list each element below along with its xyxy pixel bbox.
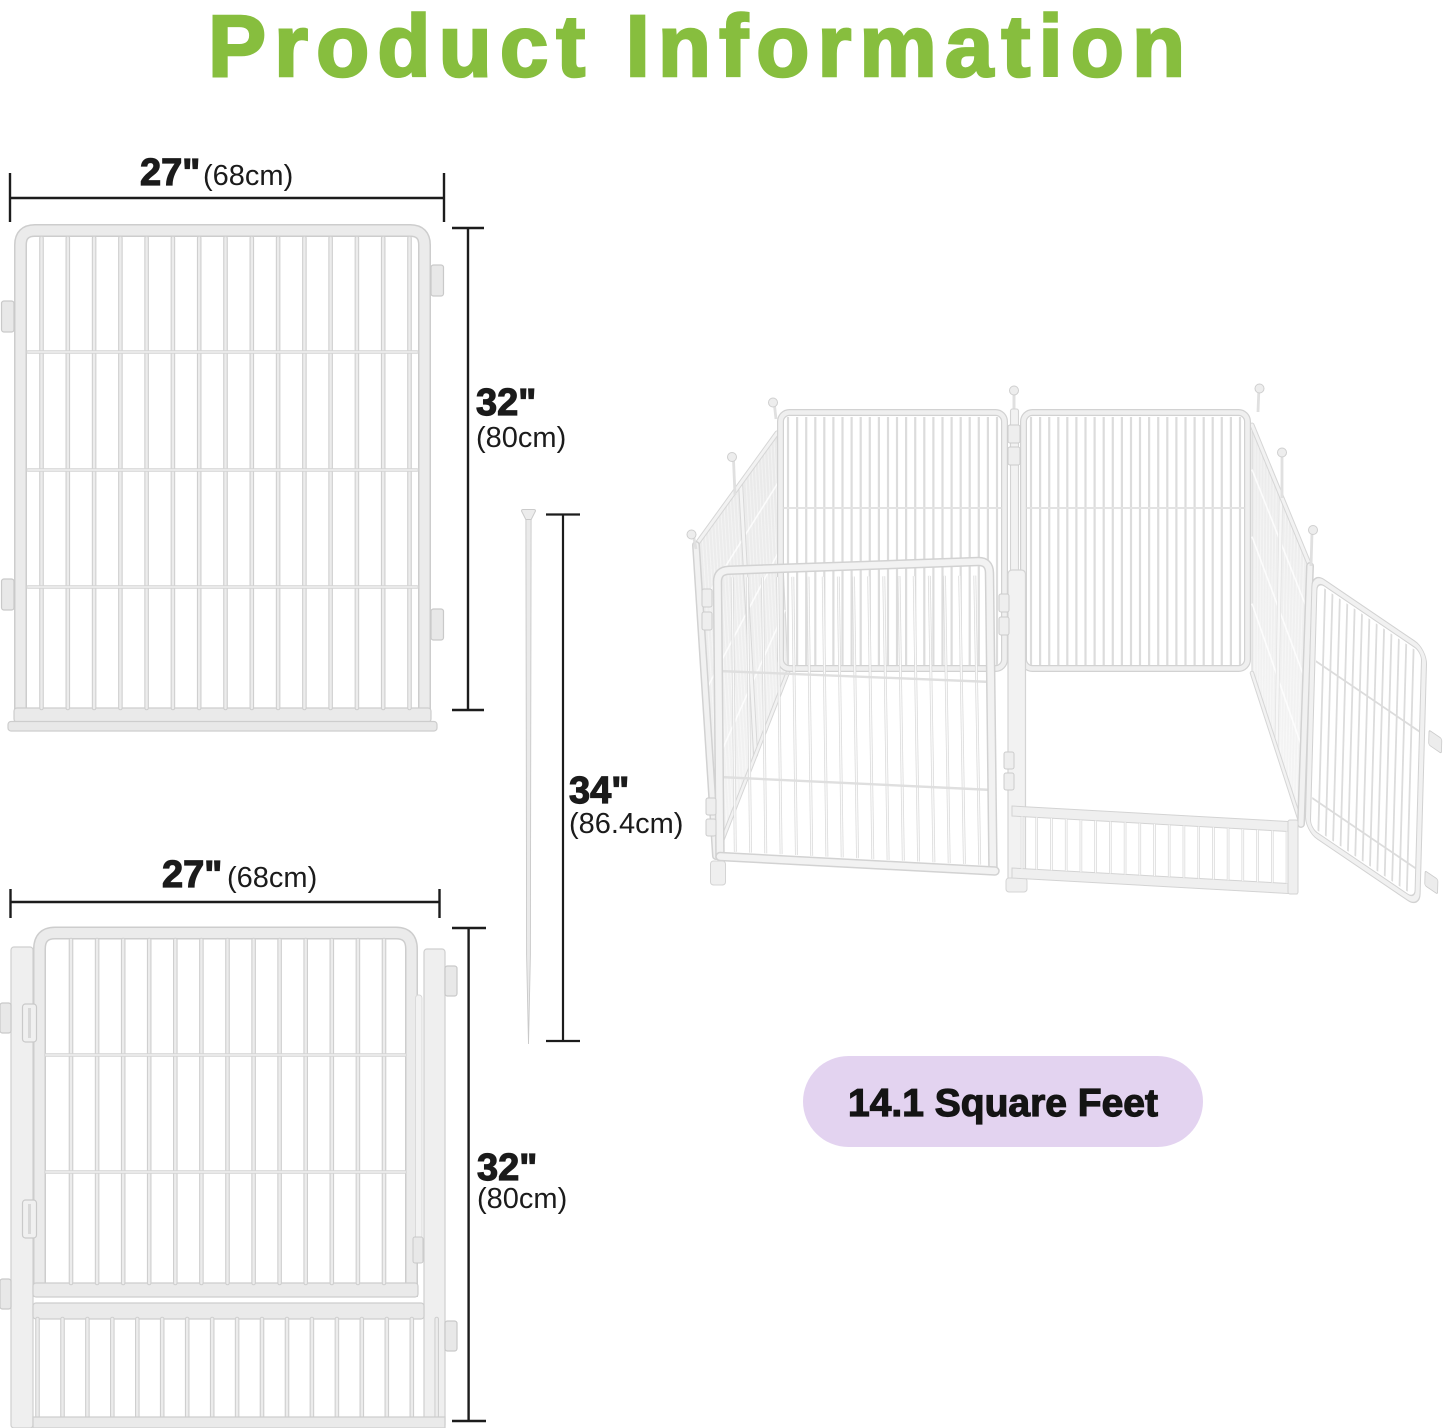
svg-text:27": 27" — [162, 854, 222, 896]
svg-text:(86.4cm): (86.4cm) — [569, 808, 683, 840]
svg-text:(80cm): (80cm) — [477, 1183, 567, 1215]
svg-text:14.1 Square Feet: 14.1 Square Feet — [848, 1082, 1158, 1125]
svg-text:Product Information: Product Information — [208, 0, 1193, 95]
svg-text:32": 32" — [476, 382, 536, 424]
svg-text:27": 27" — [140, 152, 200, 194]
svg-text:(80cm): (80cm) — [476, 422, 566, 454]
svg-text:34": 34" — [569, 770, 629, 812]
svg-text:(68cm): (68cm) — [227, 862, 317, 894]
svg-text:(68cm): (68cm) — [203, 160, 293, 192]
